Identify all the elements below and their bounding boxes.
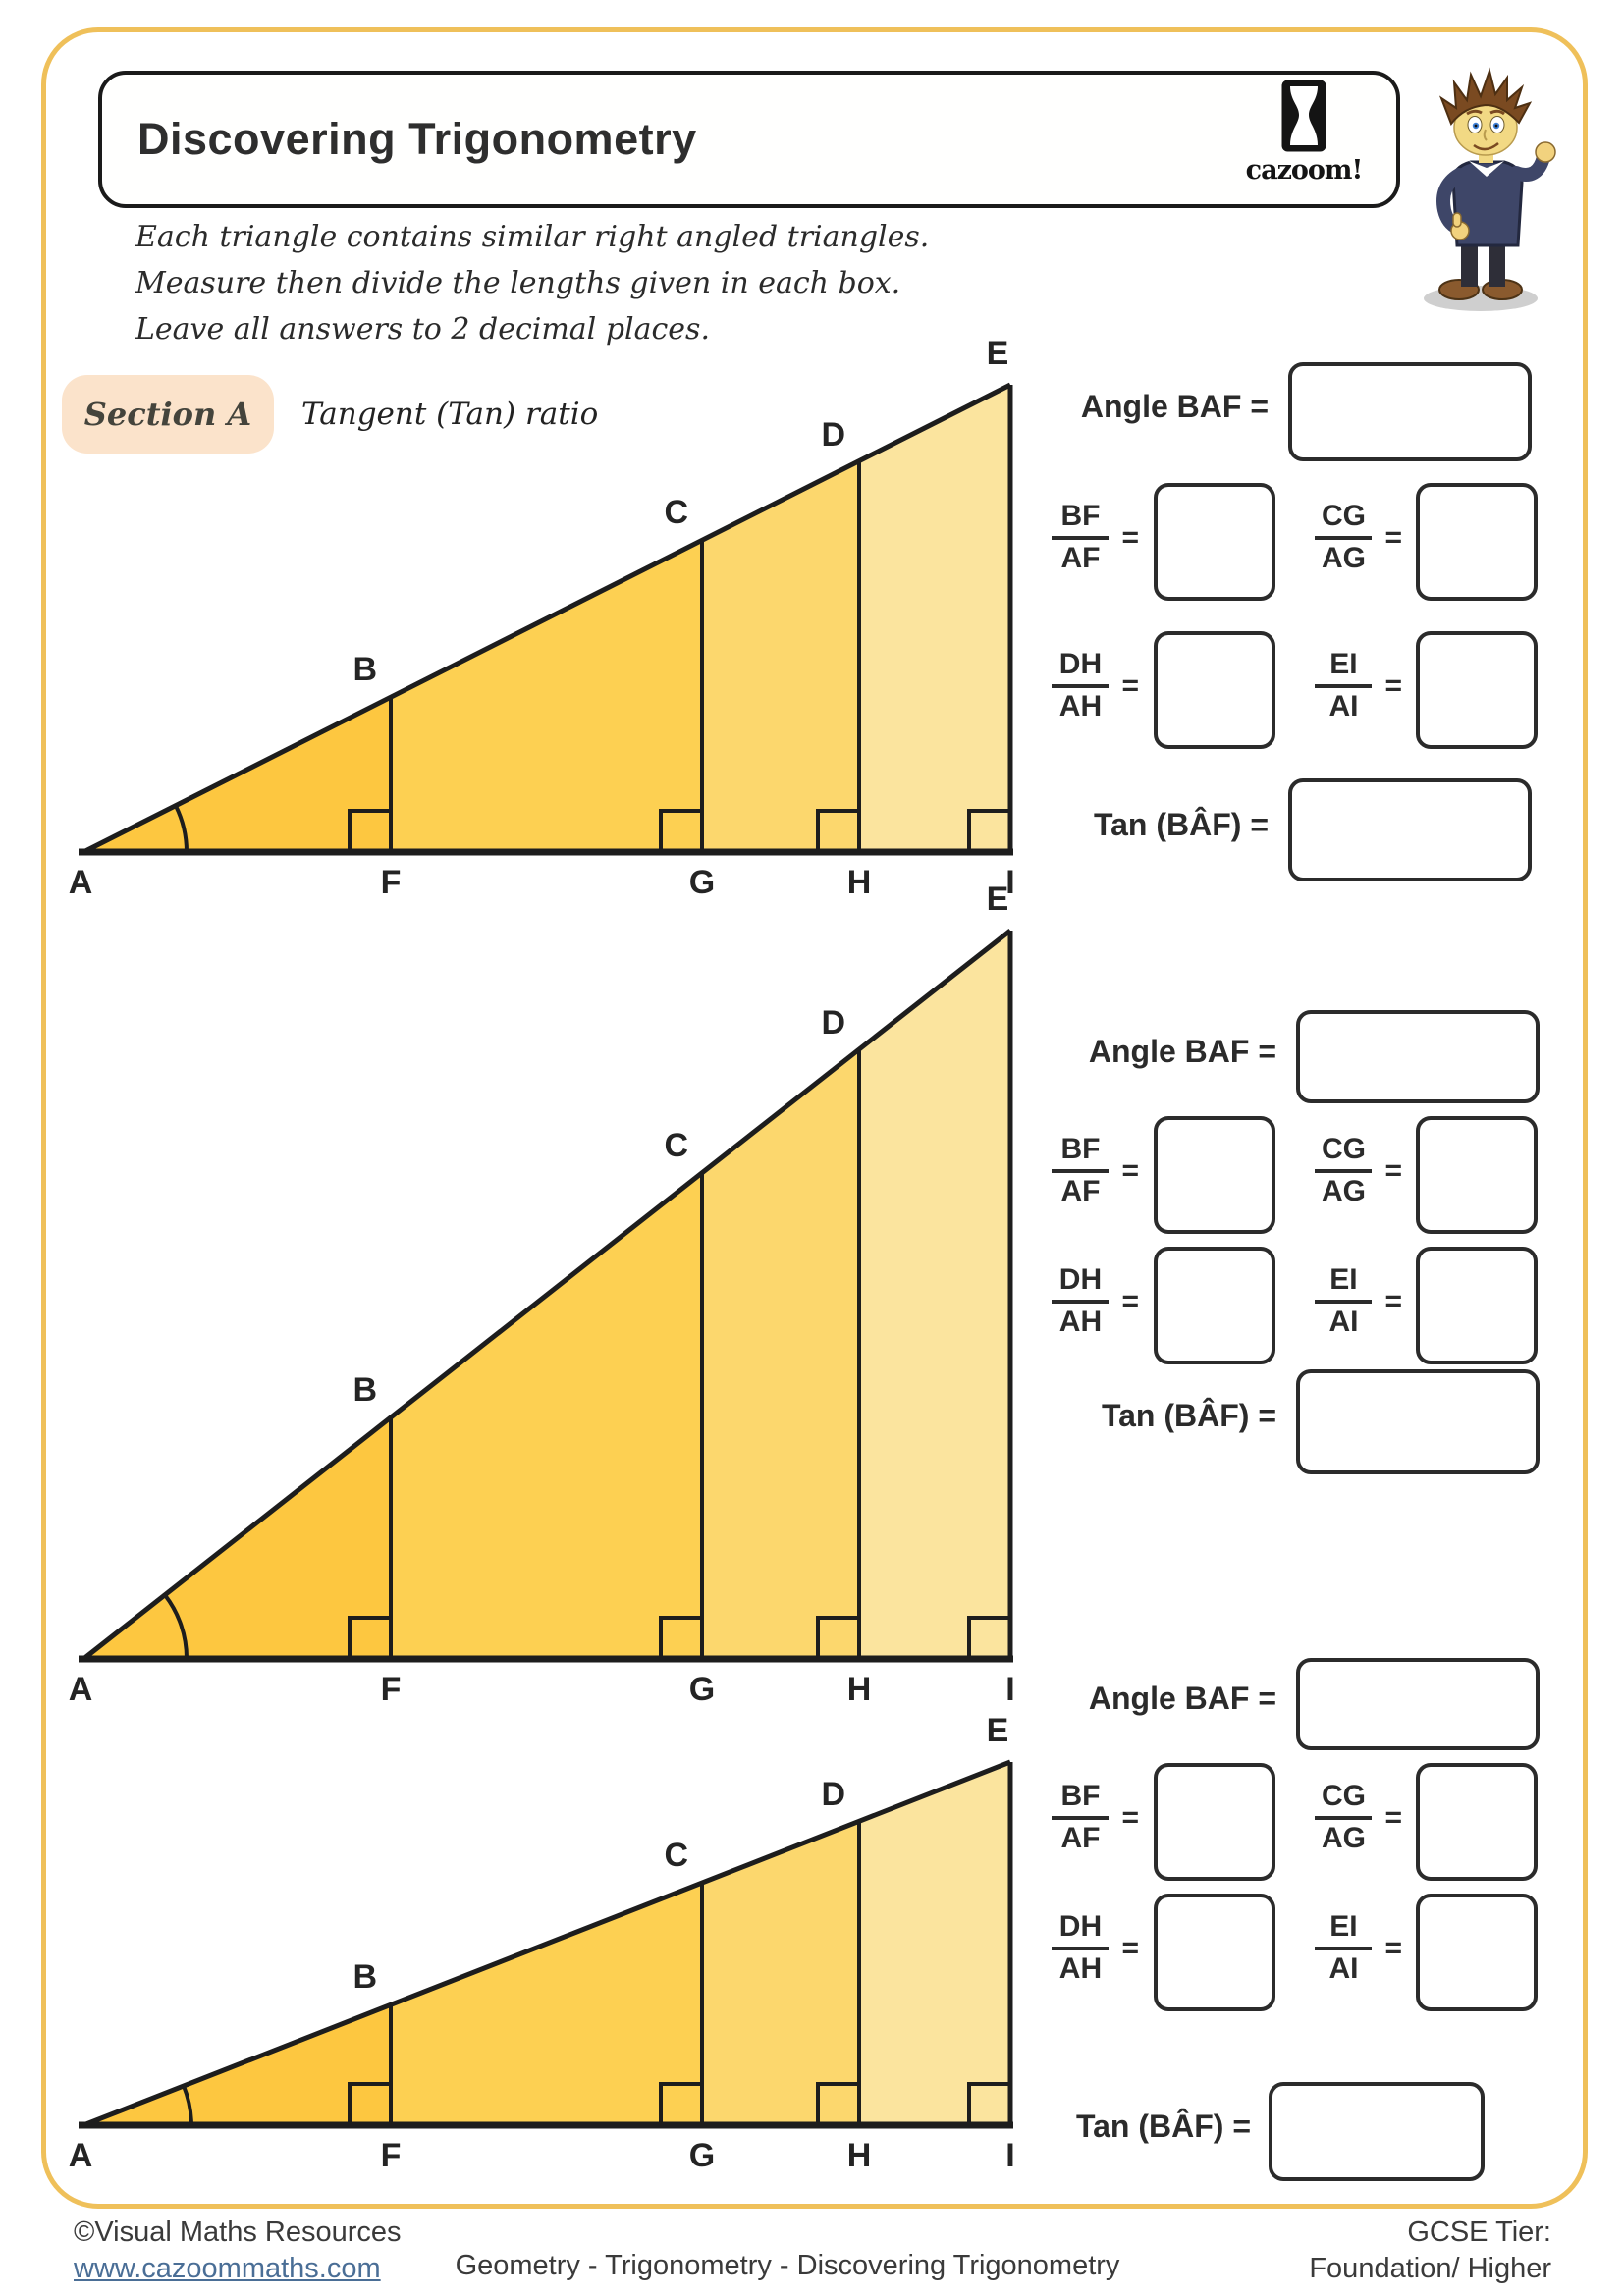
vertex-label-G: G (689, 1671, 715, 1708)
fraction-numerator: CG (1322, 1135, 1366, 1165)
fraction-stack: BF AF (1052, 1782, 1109, 1853)
band-GCDH (702, 1049, 859, 1659)
vertex-label-E: E (987, 1712, 1009, 1749)
vertex-label-B: B (352, 1371, 377, 1409)
ei-ai-answer-box-3[interactable] (1416, 1894, 1538, 2011)
fraction-bar (1315, 536, 1372, 540)
fraction-numerator: DH (1059, 1265, 1102, 1296)
worksheet-page: Discovering Trigonometry cazoom! (0, 0, 1624, 2296)
equals-sign: = (1121, 521, 1139, 555)
equals-sign: = (1384, 1801, 1402, 1835)
angle-baf-label-2: Angle BAF = (931, 1034, 1276, 1070)
equals-sign: = (1384, 521, 1402, 555)
vertex-label-E: E (987, 883, 1009, 918)
equals-sign: = (1384, 1154, 1402, 1188)
dh-ah-answer-box-3[interactable] (1154, 1894, 1275, 2011)
fraction-bar (1315, 1300, 1372, 1304)
angle-baf-label-3: Angle BAF = (931, 1681, 1276, 1717)
fraction-numerator: EI (1329, 650, 1357, 680)
header: Discovering Trigonometry (98, 71, 1400, 208)
footer-right: GCSE Tier: Foundation/ Higher (1218, 2215, 1551, 2287)
fraction-cg-ag-1: CG AG = (1259, 483, 1402, 593)
ei-ai-answer-box-1[interactable] (1416, 631, 1538, 749)
fraction-denominator: AI (1328, 1308, 1358, 1338)
vertex-label-E: E (987, 335, 1009, 372)
fraction-denominator: AG (1322, 544, 1366, 574)
fraction-denominator: AH (1059, 1954, 1102, 1985)
equals-sign: = (1121, 1932, 1139, 1965)
fraction-numerator: BF (1060, 502, 1100, 532)
band-GCDH (702, 461, 859, 852)
instruction-line-2: Measure then divide the lengths given in… (135, 260, 929, 306)
fraction-bar (1052, 1816, 1109, 1820)
vertex-label-A: A (69, 1671, 93, 1708)
fraction-stack: DH AH (1052, 1265, 1109, 1337)
tan-baf-answer-box-3[interactable] (1269, 2082, 1485, 2181)
fraction-numerator: CG (1322, 502, 1366, 532)
fraction-stack: EI AI (1315, 1912, 1372, 1984)
fraction-denominator: AF (1060, 544, 1100, 574)
fraction-numerator: EI (1329, 1912, 1357, 1943)
fraction-stack: EI AI (1315, 1265, 1372, 1337)
footer-breadcrumb: Geometry - Trigonometry - Discovering Tr… (395, 2250, 1180, 2282)
band-FBCG (391, 1173, 702, 1659)
cg-ag-answer-box-1[interactable] (1416, 483, 1538, 601)
fraction-numerator: CG (1322, 1782, 1366, 1812)
brand-name: cazoom! (1246, 155, 1363, 186)
mascot-boy-illustration (1394, 51, 1571, 314)
tan-baf-answer-box-2[interactable] (1296, 1369, 1540, 1474)
equals-sign: = (1121, 1801, 1139, 1835)
fraction-denominator: AF (1060, 1824, 1100, 1854)
fraction-bf-af-2: BF AF = (997, 1116, 1139, 1226)
tan-baf-answer-box-1[interactable] (1288, 778, 1532, 881)
fraction-bar (1315, 1947, 1372, 1950)
vertex-label-D: D (821, 416, 845, 454)
equals-sign: = (1121, 1154, 1139, 1188)
fraction-denominator: AG (1322, 1177, 1366, 1207)
angle-baf-answer-box-3[interactable] (1296, 1658, 1540, 1750)
fraction-bar (1052, 684, 1109, 688)
fraction-stack: CG AG (1315, 1782, 1372, 1853)
fraction-bf-af-3: BF AF = (997, 1763, 1139, 1873)
fraction-numerator: DH (1059, 1912, 1102, 1943)
band-FBCG (391, 1883, 702, 2125)
fraction-stack: CG AG (1315, 502, 1372, 573)
fraction-numerator: BF (1060, 1782, 1100, 1812)
triangle-diagram-1: A F G H I B C D E (59, 334, 1051, 903)
fraction-denominator: AI (1328, 1954, 1358, 1985)
bf-af-answer-box-1[interactable] (1154, 483, 1275, 601)
dh-ah-answer-box-1[interactable] (1154, 631, 1275, 749)
cg-ag-answer-box-3[interactable] (1416, 1763, 1538, 1881)
fraction-denominator: AH (1059, 692, 1102, 722)
vertex-label-B: B (352, 651, 377, 688)
dh-ah-answer-box-2[interactable] (1154, 1247, 1275, 1364)
fraction-stack: CG AG (1315, 1135, 1372, 1206)
fraction-denominator: AH (1059, 1308, 1102, 1338)
vertex-label-F: F (381, 2137, 402, 2174)
bf-af-answer-box-2[interactable] (1154, 1116, 1275, 1234)
copyright-text: ©Visual Maths Resources (74, 2215, 402, 2251)
equals-sign: = (1384, 1932, 1402, 1965)
band-GCDH (702, 1821, 859, 2125)
band-FBCG (391, 540, 702, 852)
fraction-bf-af-1: BF AF = (997, 483, 1139, 593)
vertex-label-C: C (664, 1837, 688, 1874)
gcse-tier-value: Foundation/ Higher (1218, 2251, 1551, 2287)
triangle-diagram-3: A F G H I B C D E (59, 1708, 1051, 2204)
angle-baf-label-1: Angle BAF = (923, 389, 1269, 425)
equals-sign: = (1121, 1285, 1139, 1318)
fraction-dh-ah-3: DH AH = (997, 1894, 1139, 2003)
fraction-numerator: DH (1059, 650, 1102, 680)
fraction-bar (1315, 684, 1372, 688)
fraction-bar (1052, 1947, 1109, 1950)
fraction-dh-ah-1: DH AH = (997, 631, 1139, 741)
fraction-dh-ah-2: DH AH = (997, 1247, 1139, 1357)
tan-baf-label-3: Tan (BÂF) = (905, 2109, 1251, 2145)
vertex-label-B: B (352, 1958, 377, 1996)
fraction-stack: DH AH (1052, 1912, 1109, 1984)
hourglass-icon (1280, 79, 1327, 153)
equals-sign: = (1384, 669, 1402, 703)
fraction-ei-ai-1: EI AI = (1259, 631, 1402, 741)
tan-baf-label-1: Tan (BÂF) = (923, 807, 1269, 843)
tan-baf-label-2: Tan (BÂF) = (931, 1398, 1276, 1434)
vertex-label-H: H (847, 1671, 872, 1708)
angle-baf-answer-box-1[interactable] (1288, 362, 1532, 461)
vertex-label-F: F (381, 1671, 402, 1708)
fraction-numerator: EI (1329, 1265, 1357, 1296)
fraction-numerator: BF (1060, 1135, 1100, 1165)
fraction-ei-ai-2: EI AI = (1259, 1247, 1402, 1357)
instructions: Each triangle contains similar right ang… (135, 214, 929, 352)
vertex-label-C: C (664, 1127, 688, 1164)
instruction-line-1: Each triangle contains similar right ang… (135, 214, 929, 260)
fraction-cg-ag-2: CG AG = (1259, 1116, 1402, 1226)
equals-sign: = (1384, 1285, 1402, 1318)
band-HDEI (859, 385, 1010, 852)
equals-sign: = (1121, 669, 1139, 703)
triangle-diagram-2: A F G H I B C D E (59, 883, 1051, 1708)
angle-baf-answer-box-2[interactable] (1296, 1010, 1540, 1103)
fraction-stack: DH AH (1052, 650, 1109, 721)
cazoom-logo: cazoom! (1229, 79, 1379, 198)
fraction-cg-ag-3: CG AG = (1259, 1763, 1402, 1873)
fraction-bar (1315, 1816, 1372, 1820)
fraction-ei-ai-3: EI AI = (1259, 1894, 1402, 2003)
footer-left: ©Visual Maths Resources www.cazoommaths.… (74, 2215, 402, 2287)
vertex-label-H: H (847, 2137, 872, 2174)
vertex-label-C: C (664, 494, 688, 531)
vertex-label-D: D (821, 1776, 845, 1813)
fraction-stack: EI AI (1315, 650, 1372, 721)
fraction-denominator: AF (1060, 1177, 1100, 1207)
fraction-denominator: AI (1328, 692, 1358, 722)
band-HDEI (859, 1762, 1010, 2125)
fraction-bar (1052, 1169, 1109, 1173)
cg-ag-answer-box-2[interactable] (1416, 1116, 1538, 1234)
fraction-bar (1052, 1300, 1109, 1304)
vertex-label-A: A (69, 2137, 93, 2174)
fraction-stack: BF AF (1052, 1135, 1109, 1206)
vertex-label-G: G (689, 2137, 715, 2174)
cazoommaths-link[interactable]: www.cazoommaths.com (74, 2253, 381, 2284)
fraction-denominator: AG (1322, 1824, 1366, 1854)
ei-ai-answer-box-2[interactable] (1416, 1247, 1538, 1364)
fraction-stack: BF AF (1052, 502, 1109, 573)
vertex-label-D: D (821, 1004, 845, 1041)
gcse-tier-label: GCSE Tier: (1218, 2215, 1551, 2251)
fraction-bar (1315, 1169, 1372, 1173)
fraction-bar (1052, 536, 1109, 540)
page-title: Discovering Trigonometry (137, 114, 697, 165)
mascot-right-hand (1536, 142, 1555, 162)
bf-af-answer-box-3[interactable] (1154, 1763, 1275, 1881)
